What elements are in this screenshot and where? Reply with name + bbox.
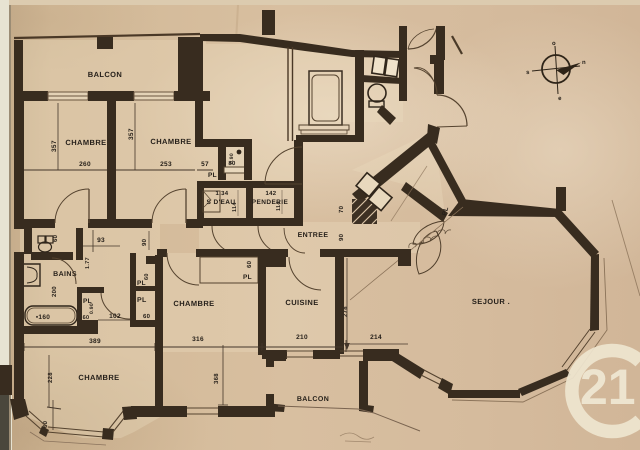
- svg-text:e: e: [558, 96, 562, 102]
- svg-text:90: 90: [141, 238, 148, 246]
- svg-text:21: 21: [580, 359, 636, 415]
- svg-text:368: 368: [213, 373, 220, 384]
- svg-text:PL: PL: [243, 274, 252, 281]
- svg-text:0.90: 0.90: [89, 303, 95, 314]
- svg-text:316: 316: [192, 336, 204, 343]
- svg-text:PENDERIE: PENDERIE: [252, 199, 289, 206]
- svg-text:114: 114: [232, 202, 238, 212]
- svg-text:57: 57: [201, 161, 209, 168]
- svg-text:70: 70: [338, 205, 345, 213]
- svg-text:90: 90: [338, 233, 345, 241]
- svg-text:SEJOUR .: SEJOUR .: [472, 297, 510, 306]
- svg-text:210: 210: [296, 334, 308, 341]
- svg-text:60: 60: [144, 273, 150, 280]
- svg-text:•160: •160: [36, 314, 50, 321]
- svg-text:389: 389: [89, 338, 101, 345]
- svg-text:253: 253: [160, 161, 172, 168]
- svg-text:200: 200: [51, 286, 58, 297]
- svg-text:214: 214: [370, 334, 382, 341]
- svg-text:CHAMBRE: CHAMBRE: [78, 373, 119, 382]
- svg-text:ENTREE: ENTREE: [298, 232, 329, 239]
- svg-text:60: 60: [246, 260, 253, 268]
- svg-text:CUISINE: CUISINE: [285, 298, 318, 307]
- svg-text:1.34: 1.34: [216, 190, 229, 197]
- svg-text:PL: PL: [137, 280, 146, 287]
- svg-text:PL: PL: [208, 172, 217, 179]
- svg-text:80: 80: [228, 160, 236, 167]
- svg-text:CHAMBRE: CHAMBRE: [150, 137, 191, 146]
- svg-text:60: 60: [83, 315, 90, 321]
- svg-text:102: 102: [109, 313, 121, 320]
- svg-text:60: 60: [52, 234, 59, 242]
- svg-text:1.77: 1.77: [85, 257, 91, 269]
- svg-text:BALCON: BALCON: [88, 70, 122, 79]
- svg-text:CHAMBRE: CHAMBRE: [173, 299, 214, 308]
- svg-text:93: 93: [97, 237, 105, 244]
- svg-text:260: 260: [79, 161, 91, 168]
- svg-text:60: 60: [143, 313, 151, 320]
- svg-text:s: s: [526, 70, 530, 76]
- svg-text:357: 357: [51, 140, 58, 152]
- svg-text:228: 228: [47, 372, 54, 383]
- svg-text:n: n: [582, 60, 586, 66]
- svg-text:142: 142: [266, 190, 277, 197]
- svg-text:o: o: [552, 41, 556, 47]
- svg-text:BALCON: BALCON: [297, 396, 329, 403]
- svg-text:357: 357: [128, 128, 135, 140]
- svg-text:PL: PL: [137, 297, 147, 304]
- svg-text:114: 114: [276, 201, 282, 211]
- svg-text:CHAMBRE: CHAMBRE: [65, 138, 106, 147]
